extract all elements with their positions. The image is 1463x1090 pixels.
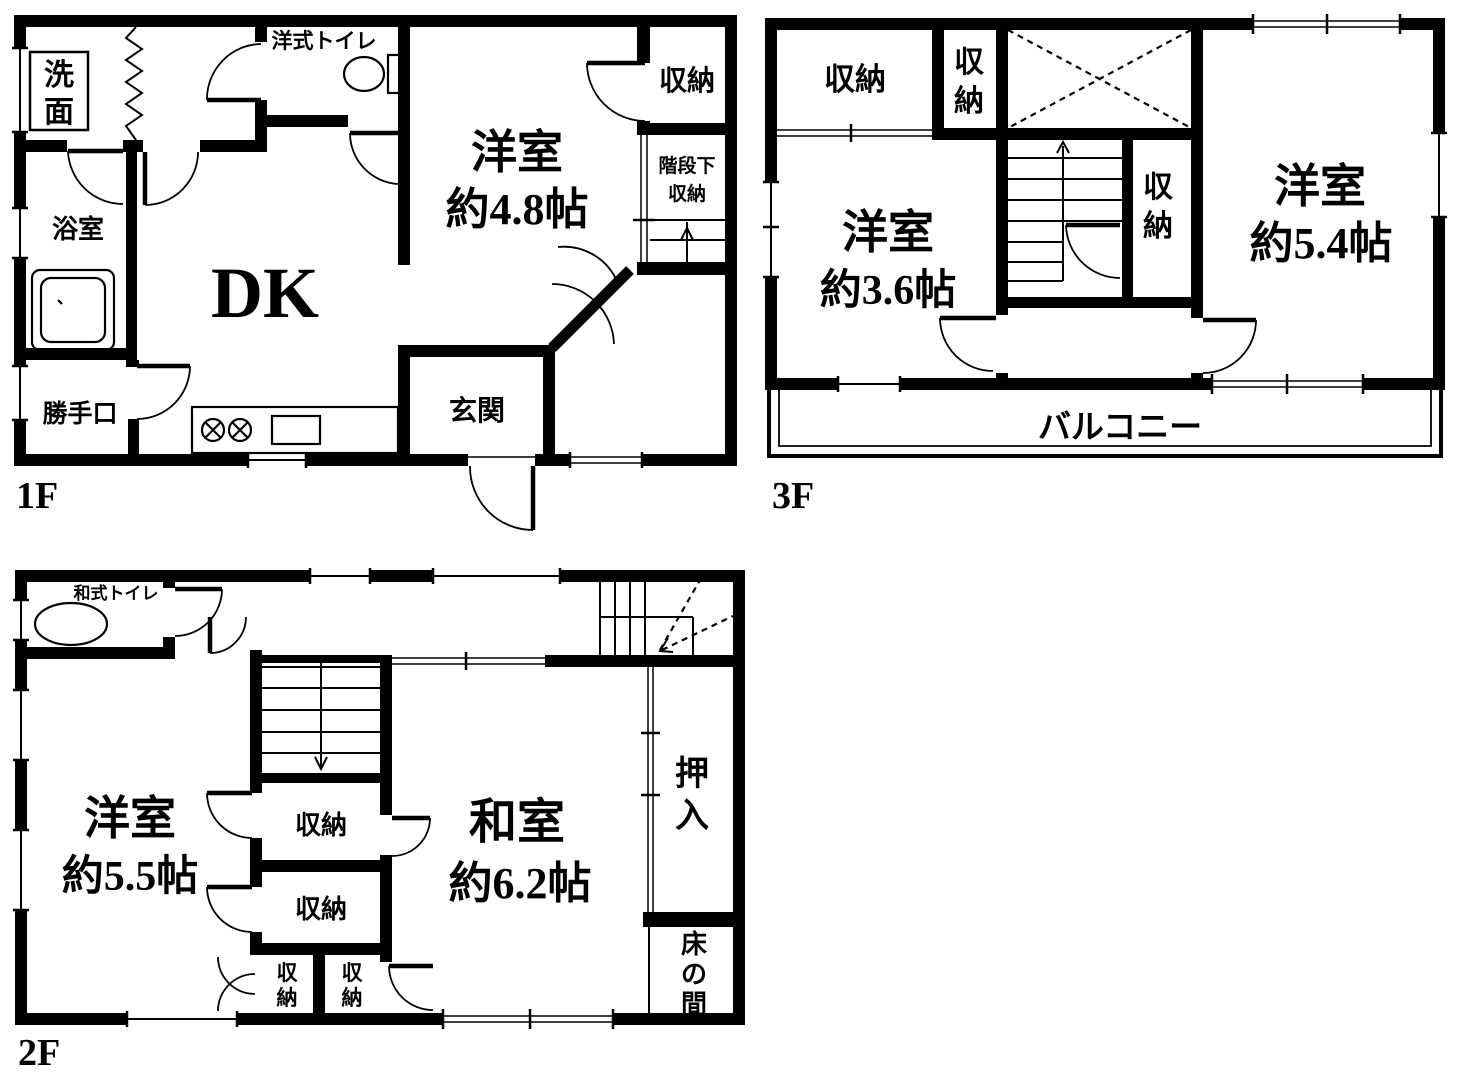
room-label-yoshitsu-2f-size: 約5.5帖 — [62, 853, 199, 900]
floor-1f: 洗面 浴室 勝手口 DK 洋式トイレ 洋室 約4.8帖 収納 階段下 収納 玄関… — [12, 15, 737, 530]
room-label-shuno-2f-upper: 収納 — [295, 810, 347, 840]
room-label-yoshitsu-3f-a: 洋室 — [842, 207, 934, 258]
accordion-door-icon — [126, 27, 142, 140]
void-x-mark — [1008, 30, 1191, 128]
room-label-yokushitsu: 浴室 — [52, 214, 104, 244]
kitchen-icons — [192, 407, 398, 453]
room-label-shuno-2f-small-left: 収納 — [277, 961, 299, 1010]
room-label-under-stairs-1: 階段下 — [658, 154, 715, 177]
floorplan-image: 洗面 浴室 勝手口 DK 洋式トイレ 洋室 約4.8帖 収納 階段下 収納 玄関… — [0, 0, 1463, 1090]
closet-sliding-front — [777, 124, 932, 142]
floor-2f: 和式トイレ 洋室 約5.5帖 収納 収納 収納 収納 和室 約6.2帖 押入 床… — [13, 568, 745, 1074]
room-label-yoshitsu-3f-a-size: 約3.6帖 — [820, 267, 957, 314]
room-label-katteguchi: 勝手口 — [42, 400, 117, 428]
room-label-balcony: バルコニー — [1038, 410, 1202, 446]
room-label-oshiire: 押入 — [675, 755, 709, 835]
floor-label-1f: 1F — [16, 475, 58, 517]
room-label-tokonoma: 床の間 — [681, 929, 707, 1019]
room-label-yoshitsu-1f-size: 約4.8帖 — [446, 185, 589, 234]
room-label-western-toilet: 洋式トイレ — [272, 29, 377, 53]
room-label-dk: DK — [211, 253, 319, 333]
room-label-under-stairs-2: 収納 — [668, 182, 706, 205]
room-label-washitsu: 和室 — [469, 796, 565, 849]
doors-3f — [940, 318, 1256, 373]
squat-toilet-icon — [35, 603, 107, 645]
room-label-shuno-3f-small: 収納 — [954, 46, 985, 118]
kitchen-sink-icon — [272, 416, 320, 444]
room-label-washitsu-size: 約6.2帖 — [449, 859, 592, 908]
floorplan-svg: 洗面 浴室 勝手口 DK 洋式トイレ 洋室 約4.8帖 収納 階段下 収納 玄関… — [0, 0, 1463, 1090]
room-label-yoshitsu-2f: 洋室 — [84, 793, 176, 844]
floor-3f: 収納 収納 収納 洋室 約3.6帖 洋室 約5.4帖 バルコニー 3F — [763, 14, 1447, 517]
kitchen-counter-icon — [192, 407, 398, 453]
room-label-yoshitsu-1f: 洋室 — [471, 127, 563, 178]
room-label-shuno-3f-mid: 収納 — [1143, 171, 1174, 243]
walls-1f — [14, 15, 737, 466]
room-label-japanese-toilet: 和式トイレ — [74, 583, 159, 603]
room-label-genkan: 玄関 — [449, 394, 505, 427]
room-label-shuno-2f-small-right: 収納 — [342, 961, 364, 1010]
stairs-2f-down — [262, 663, 380, 769]
labels-1f: 洗面 浴室 勝手口 DK 洋式トイレ 洋室 約4.8帖 収納 階段下 収納 玄関… — [16, 29, 716, 517]
floor-label-3f: 3F — [772, 475, 814, 517]
bathtub-icon — [32, 270, 114, 350]
stairs-up-arrow-icon — [681, 228, 693, 256]
room-label-shuno-3f-big: 収納 — [824, 62, 886, 97]
room-label-shuno-2f-lower: 収納 — [295, 894, 347, 924]
room-label-shuno-1f: 収納 — [659, 64, 715, 97]
stairs-3f — [1008, 142, 1122, 281]
toilet-icon — [344, 55, 400, 93]
floor-label-2f: 2F — [18, 1032, 60, 1074]
stairs-2f-up — [600, 580, 733, 655]
room-label-yoshitsu-3f-b: 洋室 — [1274, 161, 1366, 212]
room-label-yoshitsu-3f-b-size: 約5.4帖 — [1250, 219, 1393, 268]
